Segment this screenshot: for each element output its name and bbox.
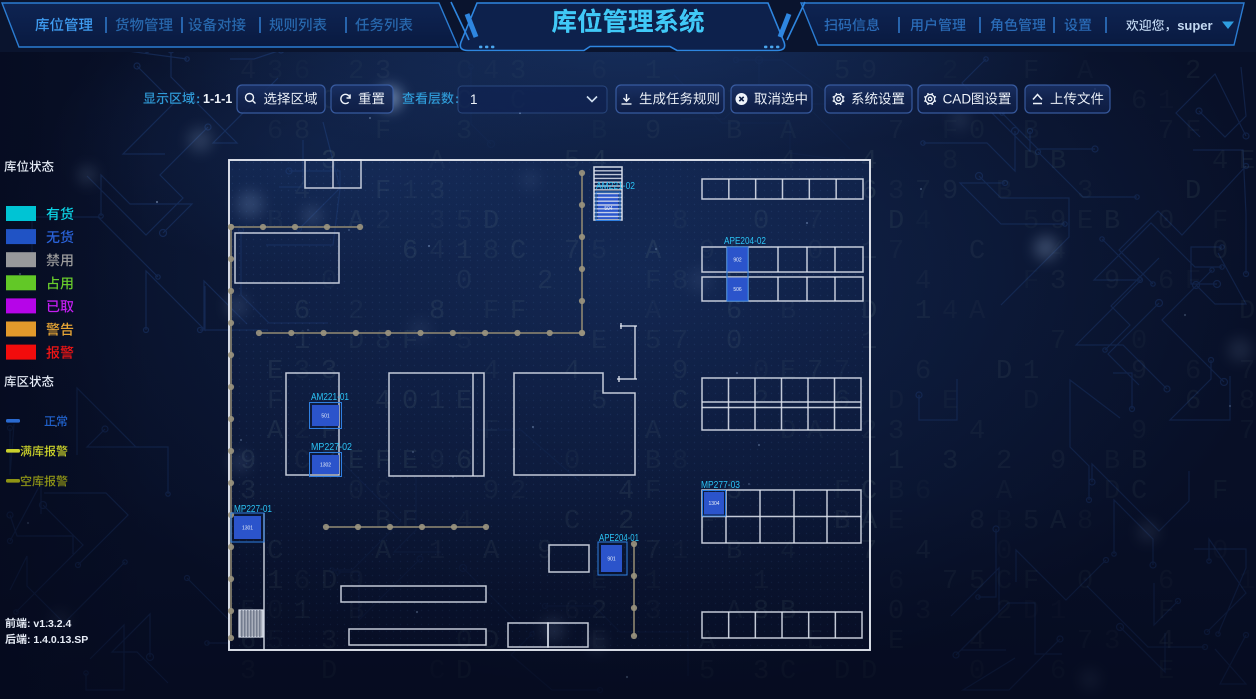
svg-text:501: 501 (321, 413, 330, 419)
svg-text:MP227-02: MP227-02 (311, 441, 352, 453)
svg-text:1304: 1304 (708, 501, 719, 507)
svg-text:1: 1 (470, 92, 478, 107)
svg-text:: 1.4.0.13.SP: : 1.4.0.13.SP (27, 634, 88, 646)
svg-text:super: super (1177, 18, 1212, 33)
svg-text:: v1.3.2.4: : v1.3.2.4 (27, 618, 72, 630)
svg-text:1302: 1302 (320, 462, 331, 468)
svg-text:CAD: CAD (943, 92, 972, 107)
svg-text:506: 506 (733, 287, 742, 293)
svg-text:1-1-1: 1-1-1 (203, 92, 232, 106)
svg-text:902: 902 (733, 258, 742, 264)
svg-text:1301: 1301 (242, 525, 253, 531)
svg-text:AM221-01: AM221-01 (311, 391, 349, 403)
svg-text::: : (196, 91, 200, 106)
svg-text:MP227-01: MP227-01 (234, 503, 272, 515)
svg-text:504: 504 (604, 206, 613, 212)
svg-text:MP277-03: MP277-03 (701, 479, 740, 491)
svg-text:APE204-02: APE204-02 (724, 235, 766, 247)
svg-text:APE204-01: APE204-01 (599, 532, 639, 544)
svg-text:901: 901 (607, 556, 616, 562)
svg-text:AM221-02: AM221-02 (596, 180, 635, 192)
